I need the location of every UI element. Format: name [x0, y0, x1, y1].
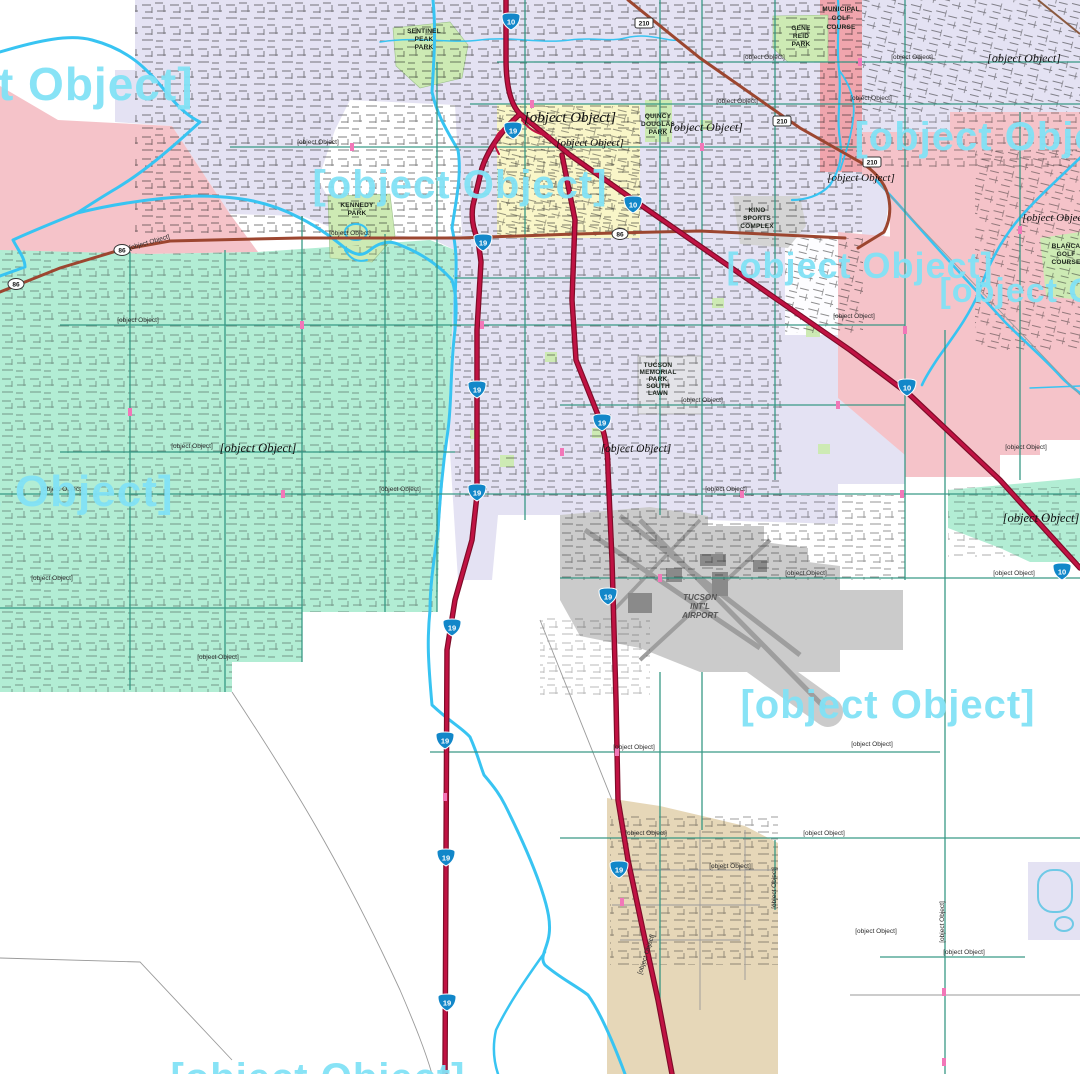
road-label: [object Object]: [681, 397, 723, 404]
road-label: [object Object]: [31, 575, 73, 582]
zip-label-85711: [object Object]: [854, 115, 1080, 159]
road-label: [object Object]: [197, 654, 239, 661]
shield-i19: 19: [615, 866, 623, 875]
shield-i19: 19: [443, 999, 451, 1008]
road-label: [object Object]: [743, 54, 785, 61]
road-label: [object Object]: [625, 830, 667, 837]
road-label: [object Object]: [705, 486, 747, 493]
road-label: [object Object]: [833, 313, 875, 320]
shield-i19: 19: [473, 489, 481, 498]
road-label: [object Object]: [297, 139, 339, 146]
map-stage: 10 10 10 10 19 19 19 19 19 19 19 19 19 1…: [0, 0, 1080, 1074]
shield-210: 210: [639, 20, 650, 27]
shield-86: 86: [118, 247, 126, 254]
shield-i10: 10: [1058, 568, 1066, 577]
shield-i19: 19: [441, 737, 449, 746]
shield-i19: 19: [604, 593, 612, 602]
shield-i19: 19: [448, 624, 456, 633]
road-label: [object Object]: [613, 744, 655, 751]
road-label: [object Object]: [709, 863, 751, 870]
place-emery-park: [object Object]: [601, 443, 672, 455]
street-map-canvas[interactable]: 10 10 10 10 19 19 19 19 19 19 19 19 19 1…: [0, 0, 1080, 1074]
shield-i10: 10: [629, 201, 637, 210]
shield-i19: 19: [473, 386, 481, 395]
shield-i19: 19: [442, 854, 450, 863]
shield-i19: 19: [598, 419, 606, 428]
place-littletown: [object Object]: [1003, 511, 1080, 525]
shield-86: 86: [616, 231, 624, 238]
road-label: [object Object]: [1005, 444, 1047, 451]
road-label: [object Object]: [716, 98, 758, 105]
place-pueblo-gardens: [object Object]: [669, 120, 743, 134]
gene-reid-park-label: GENEREIDPARK: [791, 25, 811, 48]
shield-i10: 10: [507, 18, 515, 27]
zip-label-partial-5: [object Object]: [0, 58, 194, 110]
zip-label-partial-857: [object Object]: [939, 272, 1080, 310]
road-label: [object Object]: [771, 867, 778, 909]
place-drexel-heights: [object Object]: [220, 441, 297, 455]
road-label: [object Object]: [939, 901, 946, 943]
zip-label-85746: [object Object]: [170, 1056, 465, 1074]
place-south-tucson: [object Object]: [524, 110, 616, 126]
place-vandenburg-village: [object Object]: [1022, 212, 1080, 224]
road-label: [object Object]: [171, 443, 213, 450]
road-label: [object Object]: [891, 54, 933, 61]
shield-i10: 10: [903, 384, 911, 393]
place-junction-interstate: [object Object]: [556, 137, 624, 149]
road-label: [object Object]: [943, 949, 985, 956]
road-label: [object Object]: [803, 830, 845, 837]
road-label: [object Object]: [785, 570, 827, 577]
road-label: [object Object]: [855, 928, 897, 935]
shield-210: 210: [777, 118, 788, 125]
shield-i19: 19: [479, 239, 487, 248]
shield-i19: 19: [509, 127, 517, 136]
road-label: [object Object]: [117, 317, 159, 324]
zip-label-partial-7: [object Object]: [0, 467, 174, 516]
place-craycroft: [object Object]: [987, 51, 1061, 65]
road-label: [object Object]: [993, 570, 1035, 577]
road-label: [object Object]: [329, 230, 371, 237]
road-label: [object Object]: [850, 95, 892, 102]
zip-label-85713: [object Object]: [312, 163, 607, 207]
place-polvo: [object Object]: [827, 172, 895, 184]
road-label: [object Object]: [379, 486, 421, 493]
zip-label-85706: [object Object]: [740, 683, 1035, 727]
road-label: [object Object]: [851, 741, 893, 748]
shield-86: 86: [12, 281, 20, 288]
shield-210: 210: [867, 159, 878, 166]
